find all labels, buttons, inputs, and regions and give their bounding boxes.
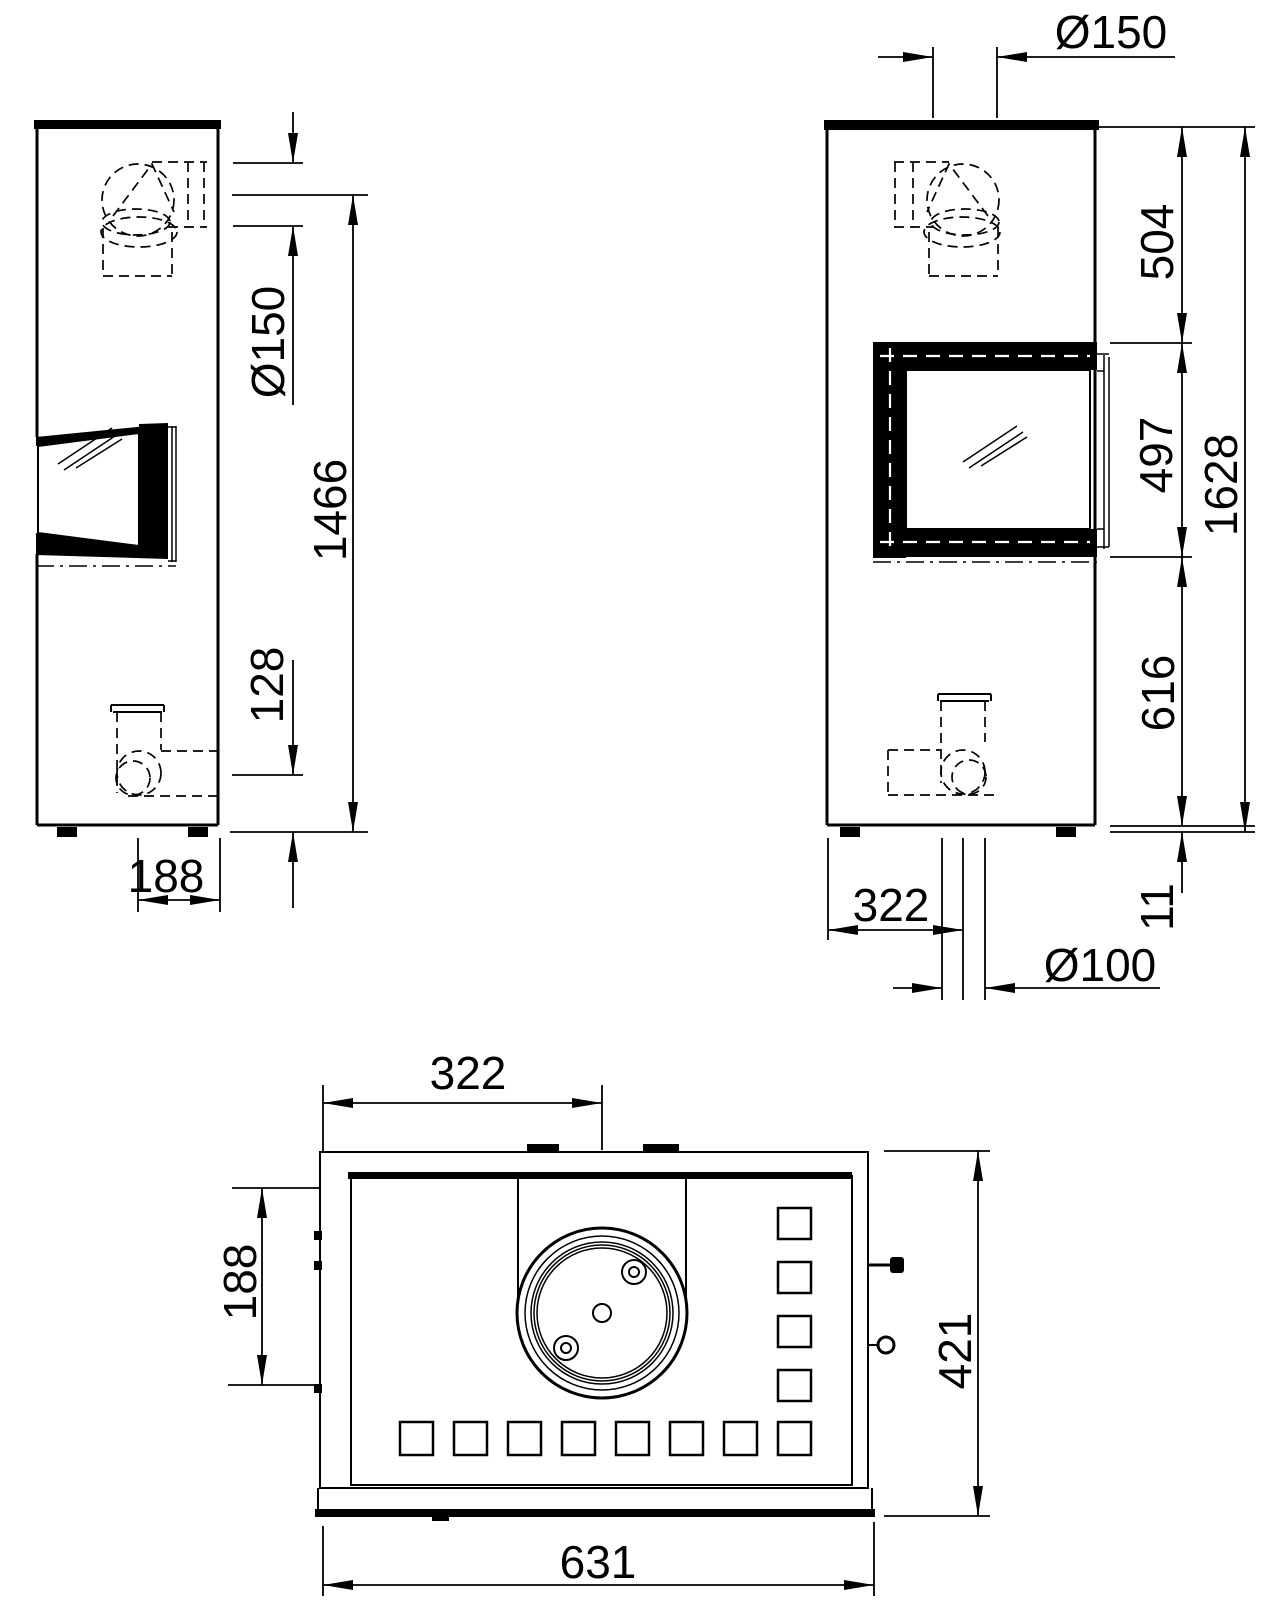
dim-flue-height: 1466 [304, 459, 356, 561]
dim-inlet-diameter: Ø100 [1044, 939, 1157, 991]
dim-flue-center-offset: 322 [430, 1047, 507, 1099]
dim-inlet-height: 128 [241, 647, 293, 724]
dim-foot-height: 11 [1131, 883, 1183, 931]
screw-lobe [554, 1336, 578, 1360]
dim-depth: 421 [929, 1313, 981, 1390]
center-pin [593, 1304, 611, 1322]
foot [840, 827, 860, 837]
handle-knob [890, 1257, 904, 1273]
technical-drawing: Ø150 1466 128 188 [0, 0, 1281, 1603]
dim-door-to-floor: 616 [1132, 655, 1184, 732]
dim-inlet-offset: 322 [853, 879, 930, 931]
dim-flue-diameter-left: Ø150 [242, 286, 294, 399]
latch-ring [878, 1337, 894, 1353]
dim-width: 631 [560, 1536, 637, 1588]
dim-total-height: 1628 [1195, 434, 1247, 536]
screw-lobe [622, 1260, 646, 1284]
dim-flue-depth-offset: 188 [214, 1244, 266, 1321]
air-inlet-elbow [888, 694, 996, 795]
flue-collar [517, 1178, 687, 1398]
glass-door [873, 342, 1109, 562]
drawing-page: Ø150 1466 128 188 [0, 0, 1281, 1603]
dim-flue-diameter-right: Ø150 [1055, 6, 1168, 58]
top-plate [34, 120, 221, 129]
top-view [314, 1144, 904, 1521]
glass-door [36, 423, 176, 566]
door-handle [868, 1257, 904, 1353]
flue-elbow-top [894, 162, 1000, 276]
edge-fittings [314, 1144, 679, 1521]
side-view-right [824, 120, 1109, 837]
glass-pane [38, 433, 139, 546]
foot [188, 827, 208, 837]
dim-inlet-depth: 188 [128, 850, 205, 902]
dim-top-to-door: 504 [1131, 204, 1183, 281]
foot [1056, 827, 1076, 837]
top-plate [824, 120, 1099, 130]
air-inlet-elbow [111, 705, 218, 796]
flue-elbow-top [101, 162, 207, 276]
dim-door-height: 497 [1130, 417, 1182, 494]
side-view-left [34, 120, 221, 837]
foot [57, 827, 77, 837]
